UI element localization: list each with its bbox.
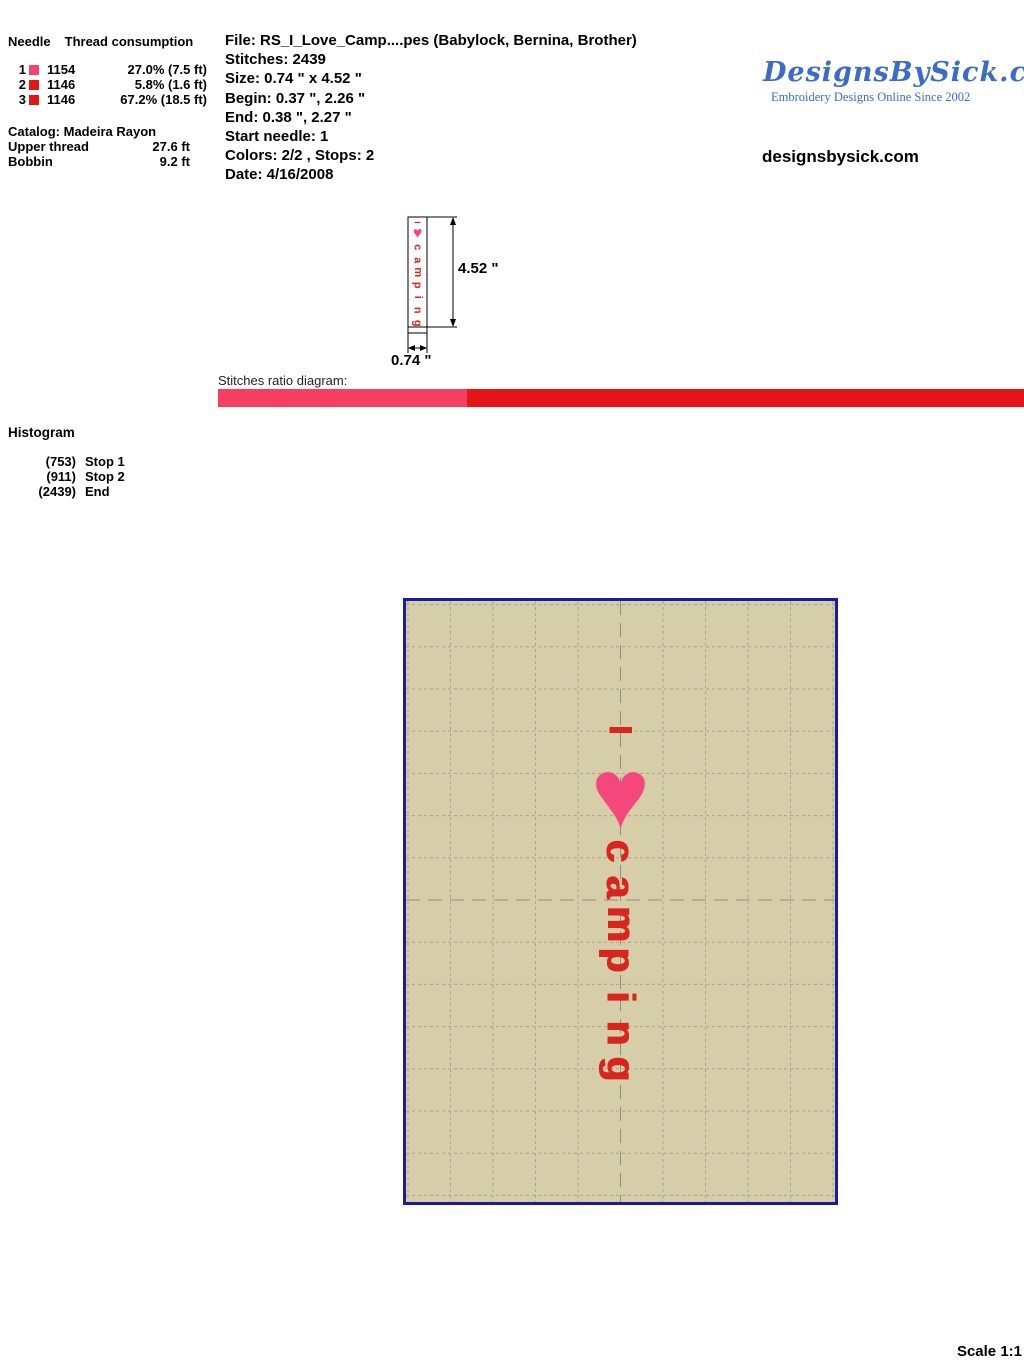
thread-consumption-header: NeedleThread consumption xyxy=(8,34,207,49)
embroidery-design: I ♥ camping xyxy=(591,707,649,1088)
stitch-letter: g xyxy=(411,319,424,326)
histogram-entry: (753) Stop 1 xyxy=(8,454,125,469)
date-line: Date: 4/16/2008 xyxy=(225,165,637,184)
needle-number: 2 xyxy=(8,77,26,92)
thread-consumption-value: 27.0% (7.5 ft) xyxy=(89,62,207,77)
table-row: 3 1146 67.2% (18.5 ft) xyxy=(8,92,207,107)
stitch-letter: n xyxy=(411,307,424,314)
file-info: File: RS_I_Love_Camp....pes (Babylock, B… xyxy=(225,31,637,185)
histogram-entry: (911) Stop 2 xyxy=(8,469,125,484)
consumption-column-header: Thread consumption xyxy=(65,34,194,49)
stitch-letter: a xyxy=(602,876,638,898)
heart-icon: ♥ xyxy=(413,227,423,241)
thread-color-swatch xyxy=(29,95,39,105)
stitch-letter: m xyxy=(411,268,424,278)
stitch-letter: c xyxy=(411,244,424,250)
catalog-line: Catalog: Madeira Rayon xyxy=(8,124,190,139)
histogram-entry: (2439) End xyxy=(8,484,125,499)
stitches-ratio-label: Stitches ratio diagram: xyxy=(218,373,347,388)
stitch-count: (911) xyxy=(8,469,76,484)
stop-label: End xyxy=(85,484,110,499)
thread-code: 1146 xyxy=(47,77,89,92)
thumbnail-word: camping xyxy=(413,241,423,329)
stitch-letter: I xyxy=(413,221,422,223)
file-name-line: File: RS_I_Love_Camp....pes (Babylock, B… xyxy=(225,31,637,50)
thread-consumption-value: 5.8% (1.6 ft) xyxy=(89,77,207,92)
print-preview-page: NeedleThread consumption 1 1154 27.0% (7… xyxy=(0,0,1024,1370)
stop-label: Stop 1 xyxy=(85,454,125,469)
needle-thread-table: 1 1154 27.0% (7.5 ft) 2 1146 5.8% (1.6 f… xyxy=(8,62,207,107)
stitch-letter: p xyxy=(411,282,424,289)
start-needle-line: Start needle: 1 xyxy=(225,127,637,146)
stitch-letter: a xyxy=(411,257,424,263)
heart-icon: ♥ xyxy=(591,753,649,833)
table-row: 1 1154 27.0% (7.5 ft) xyxy=(8,62,207,77)
hoop-preview: I ♥ camping xyxy=(403,598,838,1205)
thread-summary: Catalog: Madeira Rayon Upper thread 27.6… xyxy=(8,124,190,169)
bobbin-value: 9.2 ft xyxy=(160,154,190,169)
upper-thread-row: Upper thread 27.6 ft xyxy=(8,139,190,154)
histogram-title: Histogram xyxy=(8,425,75,440)
stitches-line: Stitches: 2439 xyxy=(225,50,637,69)
needle-number: 1 xyxy=(8,62,26,77)
stitch-letter: p xyxy=(602,948,638,972)
size-line: Size: 0.74 " x 4.52 " xyxy=(225,69,637,88)
begin-line: Begin: 0.37 ", 2.26 " xyxy=(225,89,637,108)
design-word: camping xyxy=(603,833,639,1088)
upper-thread-value: 27.6 ft xyxy=(152,139,190,154)
stop-label: Stop 2 xyxy=(85,469,125,484)
table-row: 2 1146 5.8% (1.6 ft) xyxy=(8,77,207,92)
histogram-list: (753) Stop 1 (911) Stop 2 (2439) End xyxy=(8,454,125,499)
stitch-letter: I xyxy=(597,726,643,735)
bobbin-row: Bobbin 9.2 ft xyxy=(8,154,190,169)
ratio-segment-red xyxy=(467,389,1024,407)
stitch-letter: n xyxy=(602,1021,638,1045)
designsbysick-logo[interactable]: DesignsBySick.com xyxy=(763,57,1024,88)
thread-color-swatch xyxy=(29,80,39,90)
thread-color-swatch xyxy=(29,65,39,75)
colors-stops-line: Colors: 2/2 , Stops: 2 xyxy=(225,146,637,165)
stitch-count: (753) xyxy=(8,454,76,469)
bobbin-label: Bobbin xyxy=(8,154,53,169)
stitch-count: (2439) xyxy=(8,484,76,499)
height-dimension-label: 4.52 " xyxy=(458,260,498,277)
needle-column-header: Needle xyxy=(8,34,51,49)
stitch-letter: i xyxy=(411,296,424,299)
stitches-ratio-bar xyxy=(218,389,1024,407)
scale-label: Scale 1:1 xyxy=(946,1343,1022,1360)
thread-code: 1154 xyxy=(47,62,89,77)
design-thumbnail: I ♥ camping xyxy=(408,218,427,332)
upper-thread-label: Upper thread xyxy=(8,139,89,154)
stitch-letter: c xyxy=(602,840,638,862)
width-dimension-label: 0.74 " xyxy=(391,352,431,369)
stitch-letter: g xyxy=(602,1057,638,1081)
site-url[interactable]: designsbysick.com xyxy=(762,147,919,167)
stitch-letter: i xyxy=(602,991,638,1002)
stitch-letter: m xyxy=(602,906,638,942)
thread-consumption-value: 67.2% (18.5 ft) xyxy=(89,92,207,107)
logo-tagline: Embroidery Designs Online Since 2002 xyxy=(771,90,970,105)
end-line: End: 0.38 ", 2.27 " xyxy=(225,108,637,127)
needle-number: 3 xyxy=(8,92,26,107)
thread-code: 1146 xyxy=(47,92,89,107)
ratio-segment-pink xyxy=(218,389,467,407)
